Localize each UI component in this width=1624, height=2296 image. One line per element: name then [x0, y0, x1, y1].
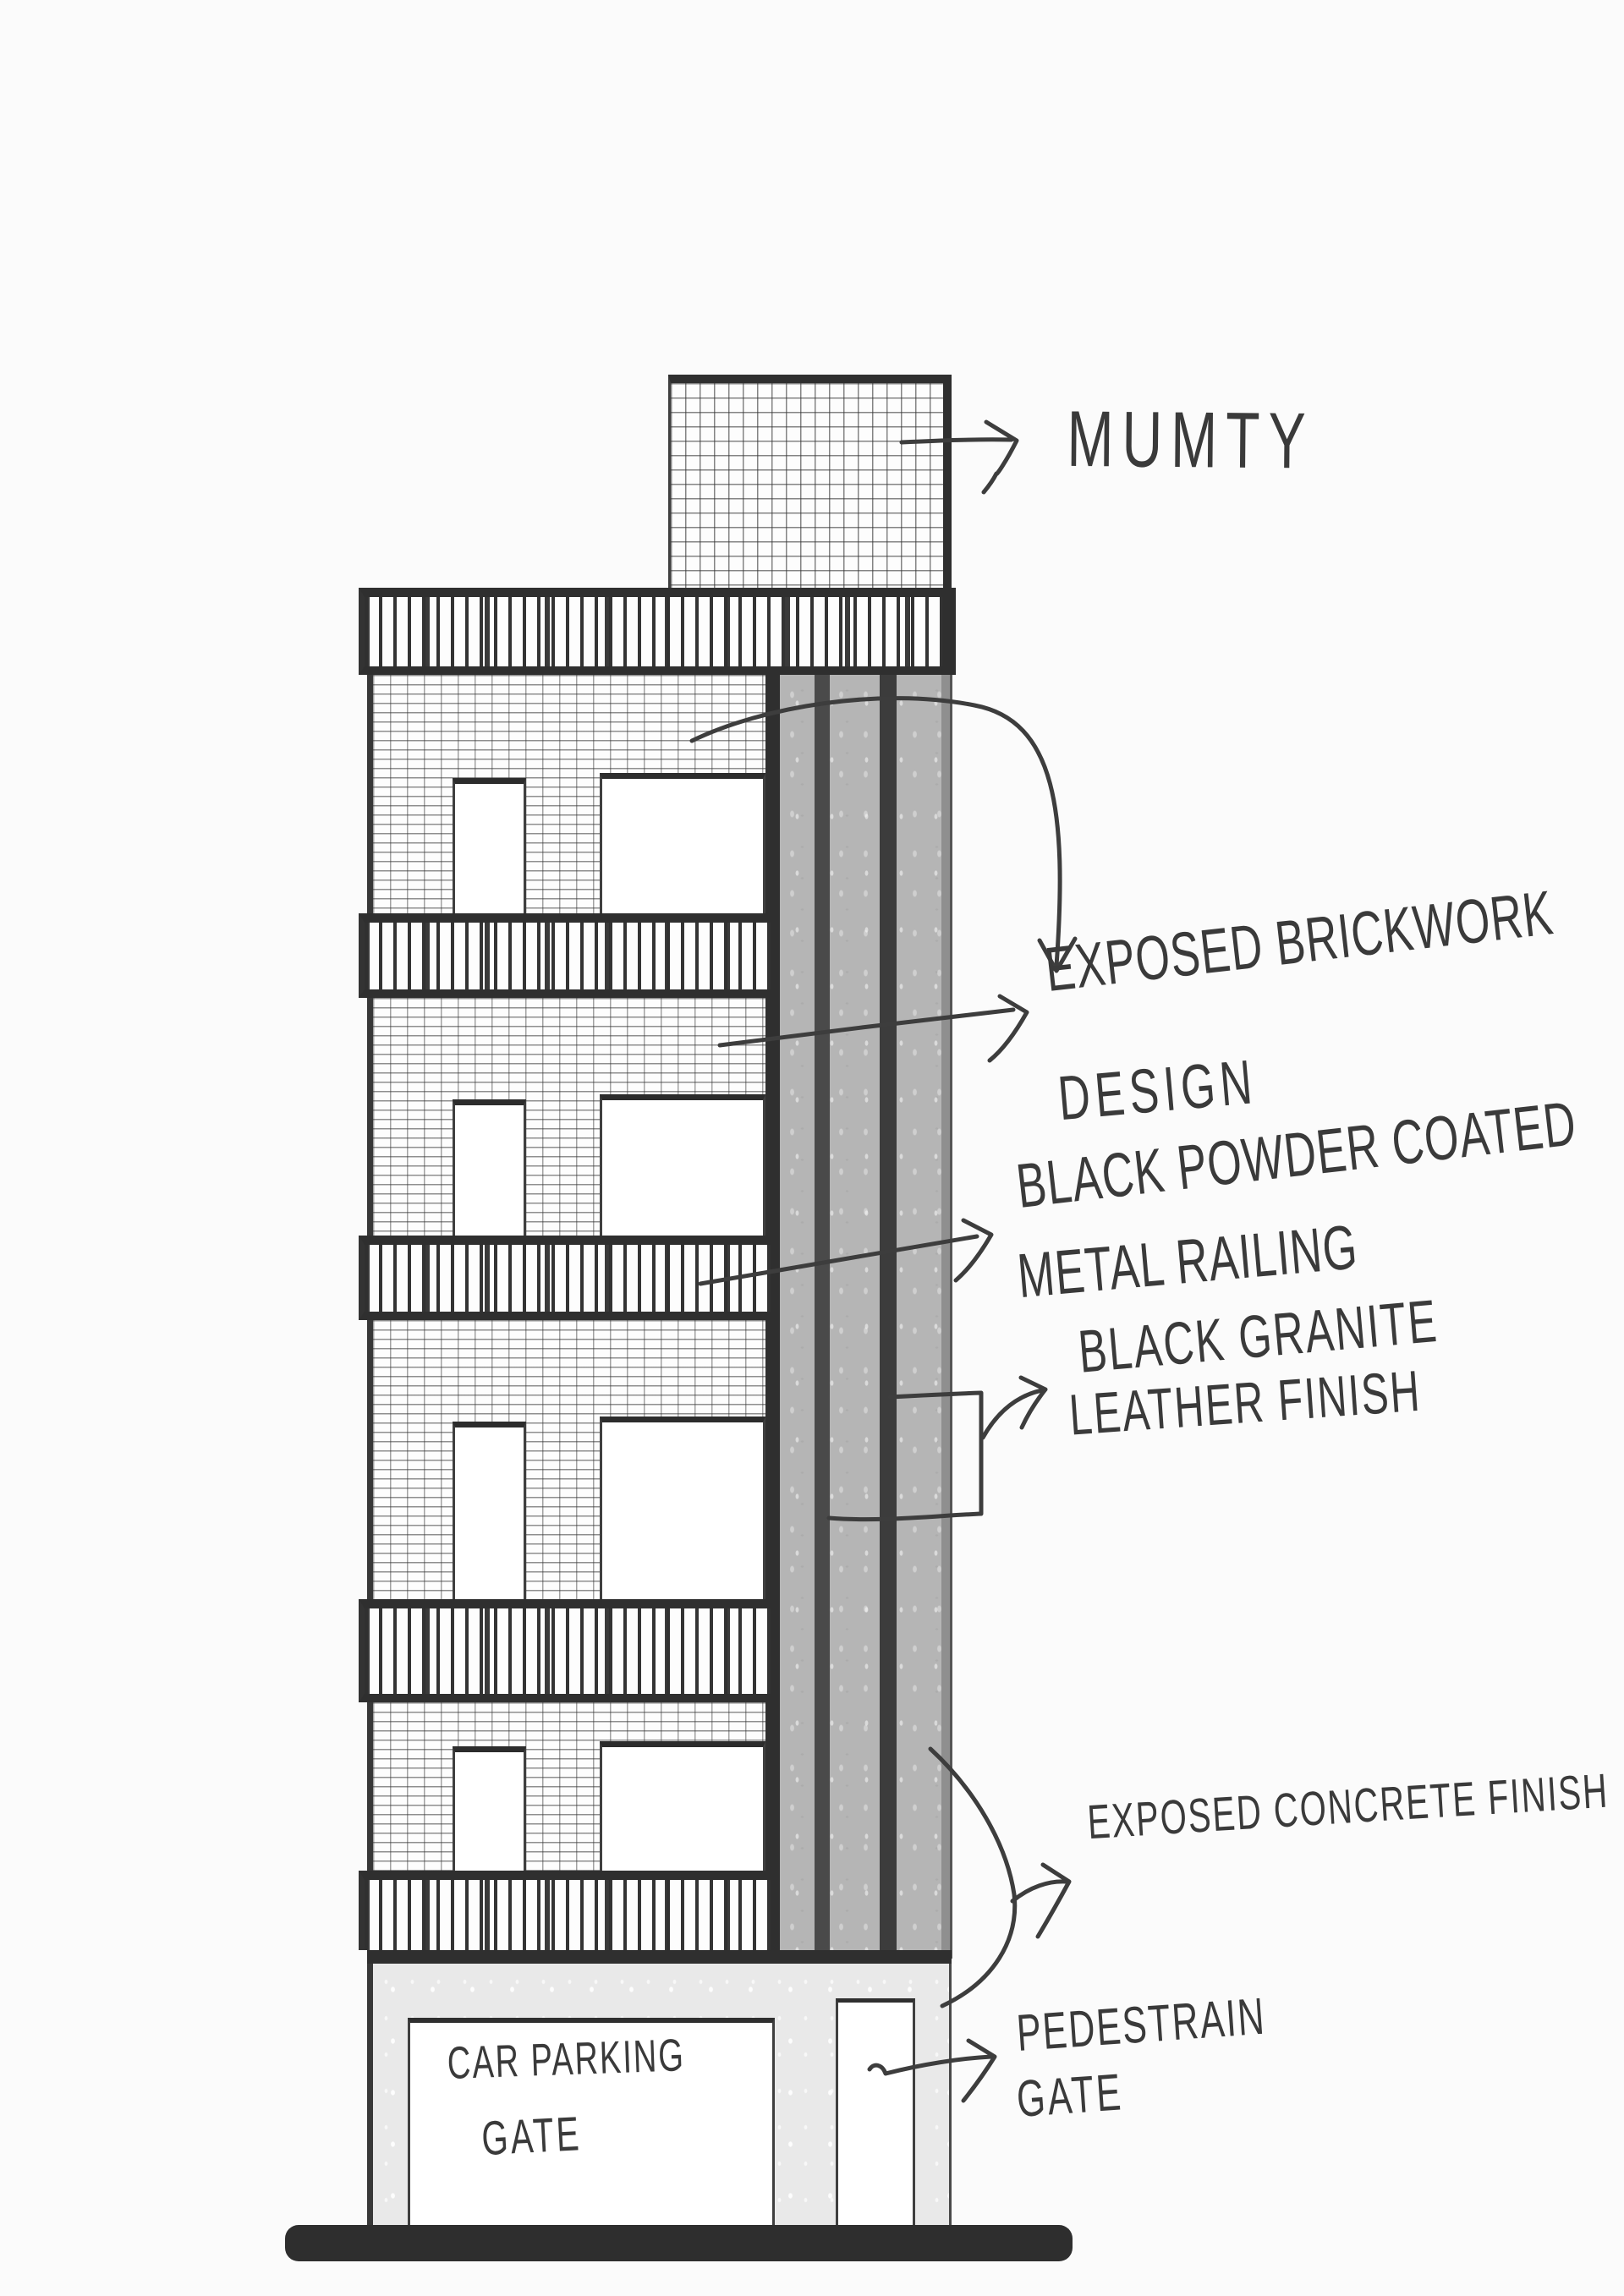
column-right-edge-line — [950, 675, 952, 1959]
window-small-floor-2 — [453, 1422, 526, 1599]
granite-stripe-left — [815, 675, 830, 1959]
mumty-block — [668, 375, 952, 588]
column-edge-band — [941, 675, 950, 1959]
concrete-column — [780, 675, 952, 1959]
ground-floor-right-edge-line — [949, 1964, 952, 2225]
elevation-sketch-canvas: MUMTY EXPOSED BRICKWORK DESIGN BLACK POW… — [0, 0, 1624, 2296]
car-parking-gate-label-line2: GATE — [480, 2109, 583, 2165]
window-large-floor-3 — [600, 1094, 765, 1236]
window-small-floor-4 — [453, 778, 526, 913]
brickwork-label-line1: EXPOSED BRICKWORK — [1042, 881, 1556, 1004]
railing-band-4 — [359, 913, 780, 998]
railing-band-1 — [359, 1871, 780, 1950]
railing-band-3 — [359, 1236, 780, 1320]
railing-label-line2: METAL RAILING — [1015, 1215, 1360, 1310]
facade-left-edge-line — [367, 588, 373, 2225]
window-small-floor-3 — [453, 1099, 526, 1236]
ground-floor-slab — [367, 1950, 952, 1964]
window-large-floor-2 — [600, 1417, 765, 1599]
window-large-floor-4 — [600, 773, 765, 913]
ground-street-line — [285, 2225, 1073, 2261]
railing-band-2 — [359, 1599, 780, 1702]
window-small-floor-1 — [453, 1746, 526, 1871]
granite-stripe-right — [880, 675, 897, 1959]
mumty-label: MUMTY — [1067, 397, 1314, 483]
concrete-label: EXPOSED CONCRETE FINISH — [1086, 1766, 1610, 1848]
pedestrian-gate-label-line1: PEDESTRAIN — [1015, 1990, 1268, 2062]
brickwork-label-line2: DESIGN — [1056, 1049, 1259, 1132]
pedestrian-gate-opening — [836, 1998, 915, 2225]
parapet-railing-band — [359, 588, 956, 675]
car-parking-gate-label-line1: CAR PARKING — [447, 2033, 686, 2089]
pedestrian-gate-label-line2: GATE — [1015, 2066, 1125, 2128]
window-large-floor-1 — [600, 1741, 765, 1871]
